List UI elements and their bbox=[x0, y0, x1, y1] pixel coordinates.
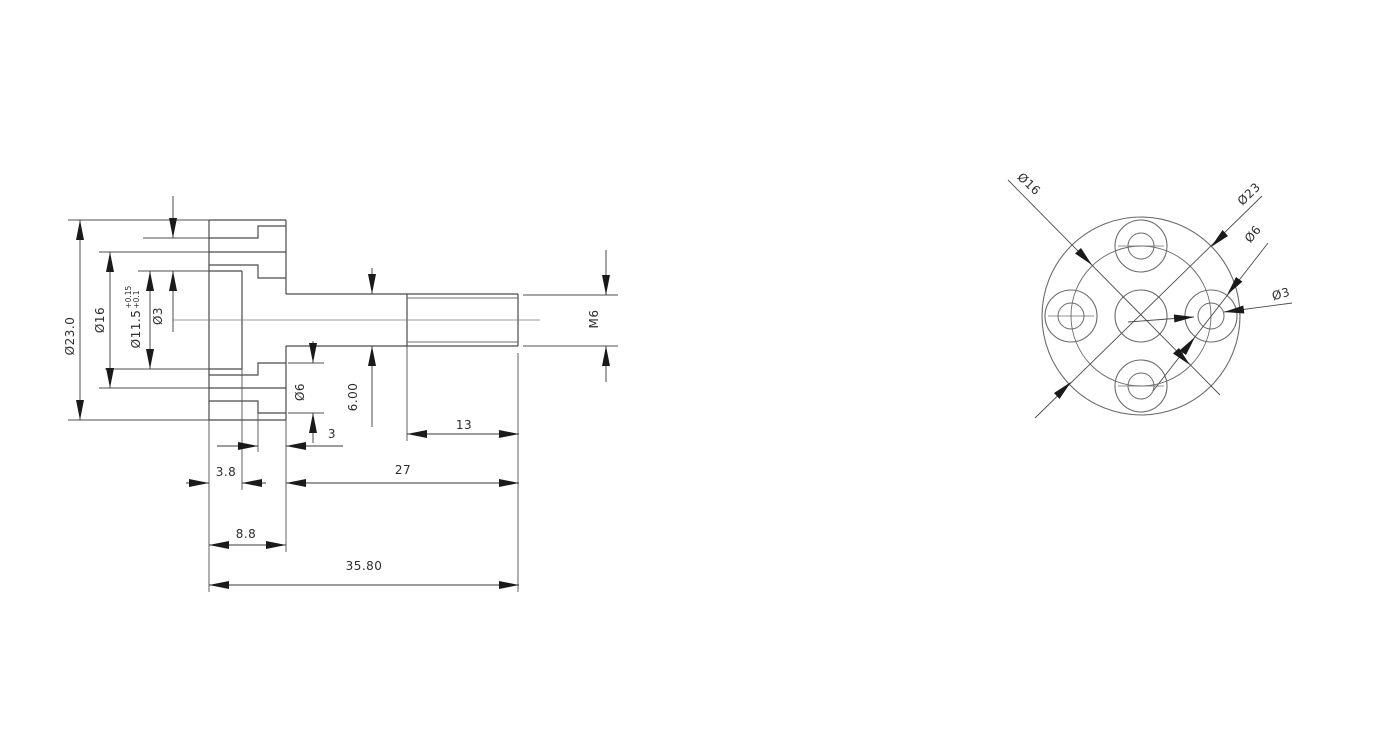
dim-shaft-dia-label: 6.00 bbox=[347, 383, 359, 412]
dimension-arrows-front bbox=[1054, 230, 1244, 399]
drawing-sheet: Ø23.0 Ø16 Ø11.5+0.15+0.1 Ø3 Ø6 6.00 M6 3… bbox=[0, 0, 1374, 741]
dim-bore-value: Ø11.5 bbox=[130, 310, 142, 349]
dim-hole-label: Ø3 bbox=[152, 307, 164, 325]
dim-overall-length-label: 35.80 bbox=[346, 560, 383, 572]
engineering-drawing-svg bbox=[0, 0, 1374, 741]
front-view-leaders bbox=[1008, 180, 1292, 418]
dim-bore-label: Ø11.5+0.15+0.1 bbox=[128, 286, 144, 349]
dim-thread-label: M6 bbox=[588, 310, 600, 329]
dimension-arrows-side bbox=[76, 218, 610, 589]
dim-recess-depth-label: 3.8 bbox=[216, 466, 237, 478]
dim-flange-thickness-label: 8.8 bbox=[236, 528, 257, 540]
dim-groove-to-face-label: 3 bbox=[328, 428, 336, 440]
dim-bore-tol-lower: +0.1 bbox=[133, 286, 141, 309]
dim-bolt-circle-label: Ø16 bbox=[94, 307, 106, 333]
front-view-center-ticks bbox=[1048, 246, 1164, 386]
dim-boss-label: Ø6 bbox=[294, 383, 306, 401]
dim-shaft-length-label: 27 bbox=[395, 464, 411, 476]
dim-thread-length-label: 13 bbox=[456, 419, 472, 431]
dimension-lines bbox=[80, 196, 606, 585]
dim-flange-od-label: Ø23.0 bbox=[64, 317, 76, 356]
